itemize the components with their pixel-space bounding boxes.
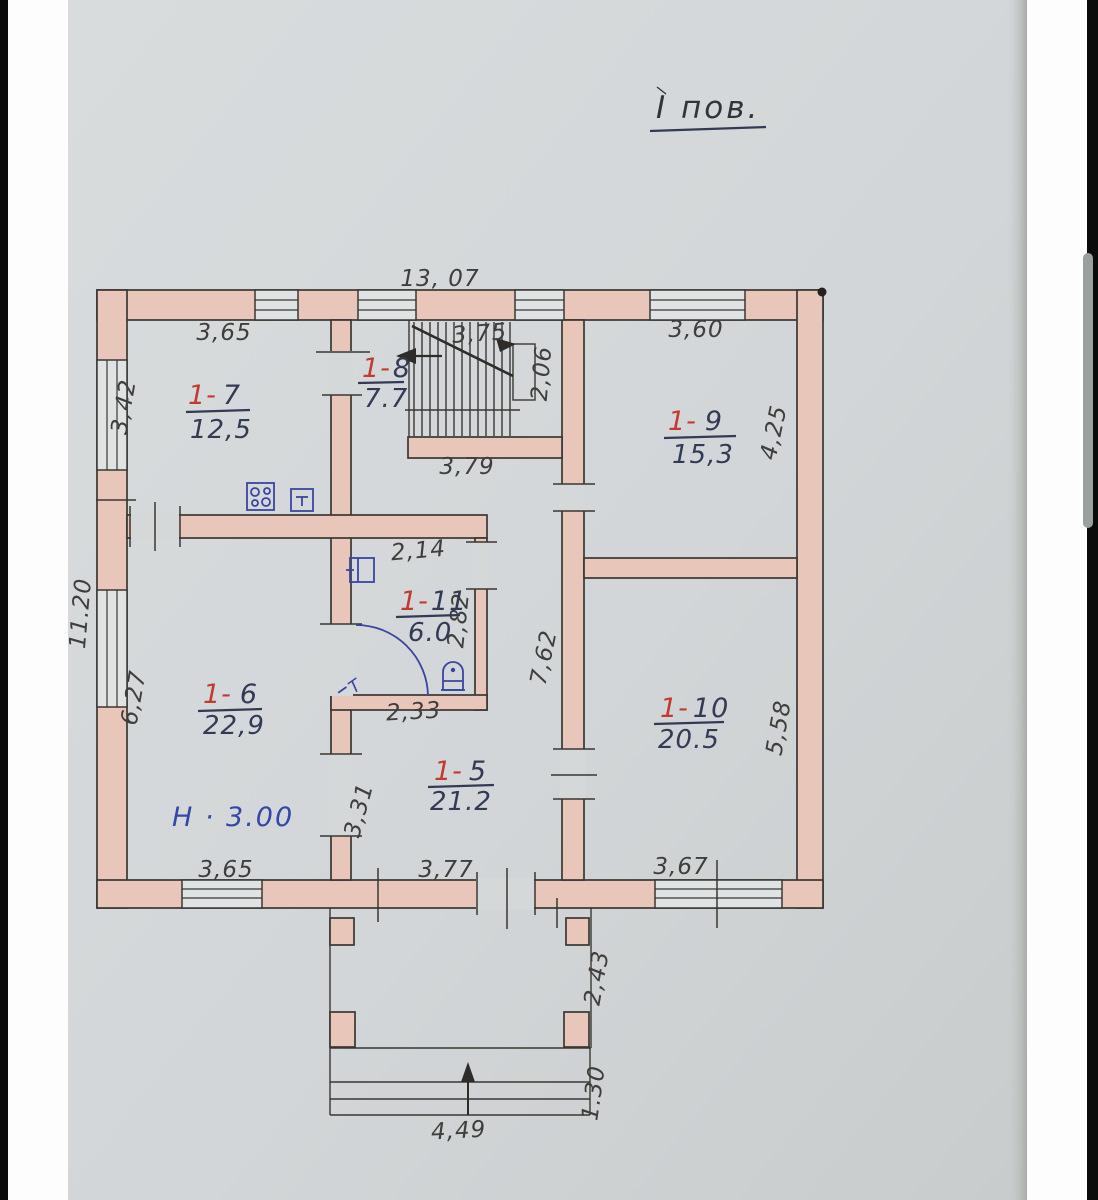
porch-pillar (566, 918, 589, 945)
room-number: 8 (393, 353, 411, 384)
window-top-3 (515, 290, 564, 320)
room-area: 20.5 (658, 725, 720, 755)
room-number-prefix: 1- (203, 679, 232, 710)
room-area: 22,9 (203, 711, 265, 741)
dim-bottom-left: 3,65 (198, 857, 253, 883)
room-label-1-8: 1-8 7.7 (358, 353, 411, 414)
floor-title-text: І пов. (656, 90, 760, 126)
room-number-prefix: 1- (668, 406, 697, 437)
dim-hall-top: 3,79 (439, 454, 494, 480)
porch-pillar (330, 1012, 355, 1047)
svg-text:1-6: 1-6 (203, 679, 258, 710)
door-gap-r10 (560, 749, 586, 799)
svg-text:1-11: 1-11 (400, 586, 467, 617)
frame-left-black (0, 0, 8, 1200)
dim-bottom-right: 3,67 (653, 854, 708, 880)
room-number: 7 (223, 380, 241, 411)
room-label-1-5: 1-5 21.2 (428, 756, 494, 817)
floor-plan-svg: І пов. (0, 0, 1098, 1200)
height-note: Н · 3.00 (172, 802, 294, 833)
svg-text:1-5: 1-5 (434, 756, 487, 787)
svg-text:1-7: 1-7 (188, 380, 241, 411)
dim-bath-bottom: 2,33 (385, 698, 442, 727)
paper-sheet (68, 0, 1027, 1200)
porch-pillar (330, 918, 354, 945)
frame-right-white (1027, 0, 1087, 1200)
window-top-4 (650, 290, 745, 320)
room-number: 6 (240, 679, 258, 710)
dim-bottom-mid: 3,77 (418, 857, 473, 883)
room-number: 10 (693, 693, 729, 724)
room-area: 12,5 (190, 415, 252, 445)
room-number-prefix: 1- (660, 693, 689, 724)
room-number: 11 (431, 586, 467, 617)
porch-pillar (564, 1012, 589, 1047)
dim-top-overall: 13, 07 (400, 266, 479, 292)
svg-text:1-10: 1-10 (660, 693, 729, 724)
door-gap-bathroom-hall (473, 542, 489, 589)
door-gap-r7-hall (329, 351, 353, 395)
dim-r7-top: 3,65 (196, 320, 251, 346)
dim-bath-top: 2,14 (390, 536, 447, 567)
dim-stairs-top: 3,75 (451, 319, 508, 349)
room-area: 21.2 (430, 787, 492, 817)
window-bottom-2 (655, 880, 782, 908)
dim-porch-bottom: 4,49 (430, 1117, 487, 1146)
room-label-1-6: 1-6 22,9 (198, 679, 265, 741)
door-gap-r9 (560, 484, 586, 511)
svg-text:1-8: 1-8 (362, 353, 411, 384)
room-area: 6.0 (408, 618, 452, 648)
frame-left-white (8, 0, 68, 1200)
room-number: 9 (705, 406, 723, 437)
room-area: 7.7 (364, 384, 408, 414)
scanned-floor-plan-page: І пов. (0, 0, 1098, 1200)
dim-stairs-side: 2,06 (527, 345, 558, 402)
wall-interior-r9-r10-divider (584, 558, 797, 578)
wall-exterior-right (797, 290, 823, 908)
floor-title: І пов. (650, 87, 766, 131)
frame-right-black (1087, 0, 1098, 1200)
window-top-2 (358, 290, 416, 320)
room-number-prefix: 1- (434, 756, 463, 787)
scrollbar-thumb[interactable] (1083, 253, 1093, 528)
window-bottom-1 (182, 880, 262, 908)
door-gap-entrance (476, 878, 534, 910)
room-number-prefix: 1- (188, 380, 217, 411)
room-area: 15,3 (672, 440, 734, 470)
svg-text:1-9: 1-9 (668, 406, 723, 437)
dim-r9-top: 3,60 (668, 317, 723, 343)
wall-interior-kitchen-horizontal (127, 515, 487, 538)
room-number-prefix: 1- (400, 586, 429, 617)
window-top-1 (255, 290, 298, 320)
room-number-prefix: 1- (362, 353, 391, 384)
corner-dot (818, 288, 827, 297)
room-number: 5 (469, 756, 487, 787)
